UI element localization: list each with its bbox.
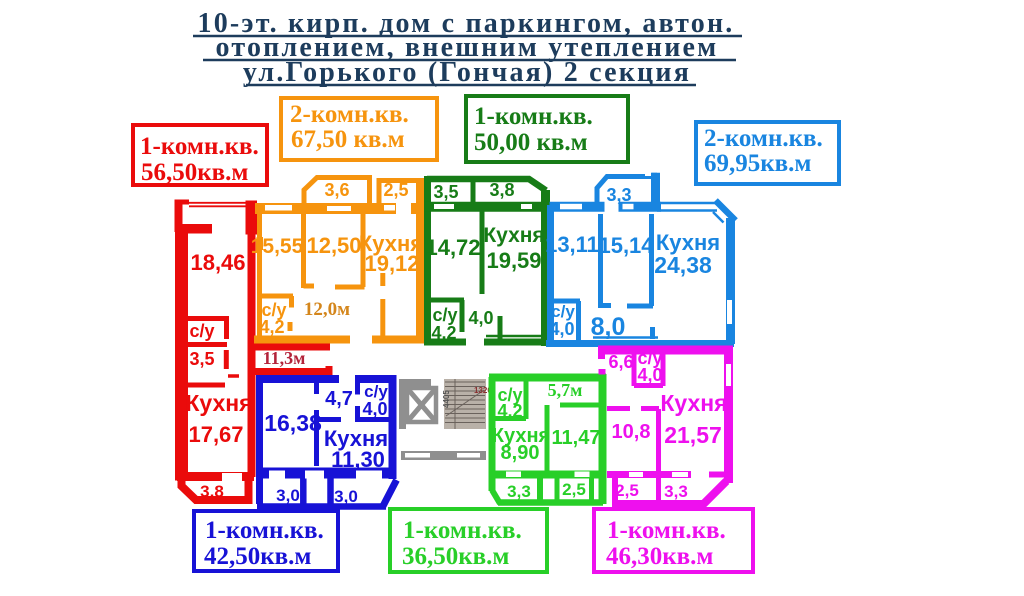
svg-text:с/у: с/у (432, 305, 457, 325)
svg-text:Кухня: Кухня (483, 224, 544, 247)
svg-text:2,5: 2,5 (383, 180, 408, 200)
svg-text:19,12: 19,12 (364, 251, 419, 276)
svg-text:3,3: 3,3 (606, 185, 631, 205)
svg-text:46,30кв.м: 46,30кв.м (606, 543, 713, 570)
svg-text:3,3: 3,3 (507, 482, 531, 501)
svg-text:3,8: 3,8 (489, 180, 514, 200)
svg-text:24,38: 24,38 (654, 252, 712, 278)
svg-text:4,7: 4,7 (325, 388, 353, 410)
svg-text:Кухня: Кухня (660, 390, 727, 416)
svg-text:4,2: 4,2 (259, 317, 284, 337)
svg-text:Кухня: Кухня (185, 390, 252, 416)
svg-text:8,0: 8,0 (591, 313, 626, 341)
svg-text:2,5: 2,5 (562, 480, 586, 499)
svg-text:14,72: 14,72 (425, 235, 480, 260)
svg-text:18,46: 18,46 (190, 250, 245, 275)
svg-text:67,50 кв.м: 67,50 кв.м (291, 126, 405, 153)
svg-text:5,7м: 5,7м (548, 380, 583, 400)
svg-text:11,30: 11,30 (331, 447, 385, 472)
svg-text:42,50кв.м: 42,50кв.м (204, 543, 311, 570)
svg-text:4405: 4405 (442, 390, 451, 408)
svg-text:1-комн.кв.: 1-комн.кв. (607, 517, 726, 544)
svg-text:3,3: 3,3 (664, 482, 688, 501)
svg-text:3,0: 3,0 (334, 487, 358, 506)
svg-text:69,95кв.м: 69,95кв.м (704, 150, 811, 177)
svg-text:3,8: 3,8 (200, 482, 224, 501)
svg-text:1-комн.кв.: 1-комн.кв. (205, 517, 324, 544)
svg-text:50,00 кв.м: 50,00 кв.м (474, 129, 588, 156)
svg-text:3,0: 3,0 (276, 486, 300, 505)
svg-text:1-комн.кв.: 1-комн.кв. (474, 103, 593, 130)
svg-text:4,0: 4,0 (362, 399, 387, 419)
svg-text:3,6: 3,6 (324, 180, 349, 200)
svg-text:1-комн.кв.: 1-комн.кв. (140, 133, 259, 160)
svg-text:11,47: 11,47 (552, 427, 601, 449)
svg-text:15,55: 15,55 (251, 235, 304, 258)
svg-text:4,2: 4,2 (497, 401, 522, 421)
svg-text:4,0: 4,0 (637, 365, 662, 385)
svg-text:36,50кв.м: 36,50кв.м (402, 543, 509, 570)
svg-text:10,8: 10,8 (612, 421, 651, 443)
svg-text:8,90: 8,90 (501, 442, 540, 464)
svg-text:21,57: 21,57 (664, 422, 722, 448)
svg-text:13,11: 13,11 (545, 232, 599, 257)
svg-text:с/у: с/у (189, 321, 214, 341)
svg-text:2-комн.кв.: 2-комн.кв. (290, 101, 409, 128)
svg-text:2-комн.кв.: 2-комн.кв. (704, 125, 823, 152)
svg-text:11,3м: 11,3м (263, 348, 306, 368)
svg-text:56,50кв.м: 56,50кв.м (141, 159, 248, 186)
svg-text:3,5: 3,5 (189, 349, 214, 369)
svg-text:15,14: 15,14 (598, 233, 654, 258)
svg-text:16,38: 16,38 (264, 410, 322, 436)
svg-text:2,5: 2,5 (615, 481, 639, 500)
svg-text:3,5: 3,5 (433, 182, 458, 202)
svg-text:ул.Горького (Гончая) 2 секция: ул.Горького (Гончая) 2 секция (243, 57, 691, 88)
svg-text:19,59: 19,59 (486, 248, 541, 273)
svg-text:1-комн.кв.: 1-комн.кв. (403, 517, 522, 544)
svg-text:12,50: 12,50 (306, 233, 361, 258)
svg-text:12,0м: 12,0м (304, 299, 350, 320)
svg-text:4,2: 4,2 (431, 323, 456, 343)
svg-text:4,0: 4,0 (549, 319, 574, 339)
svg-text:17,67: 17,67 (188, 422, 243, 447)
svg-text:6,6: 6,6 (608, 352, 633, 372)
svg-text:4,0: 4,0 (468, 308, 493, 328)
